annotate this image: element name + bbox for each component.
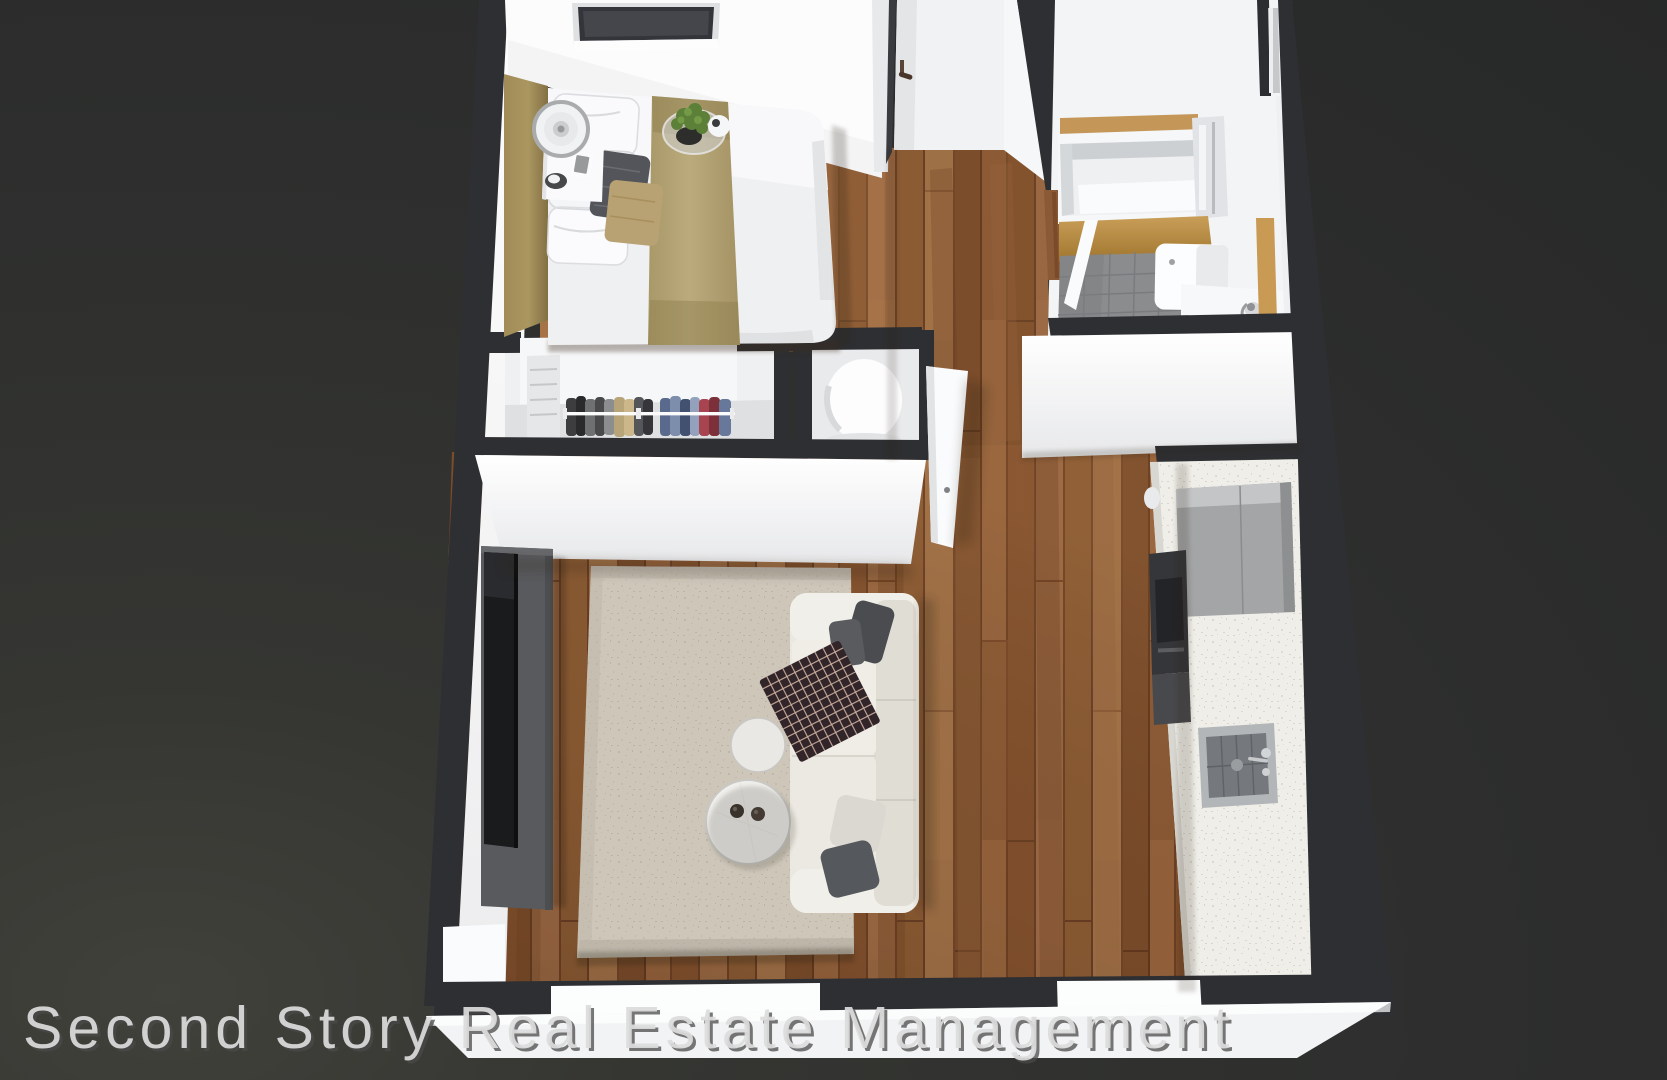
svg-text:Second Story Real Estate Manag: Second Story Real Estate Management — [23, 995, 1234, 1061]
